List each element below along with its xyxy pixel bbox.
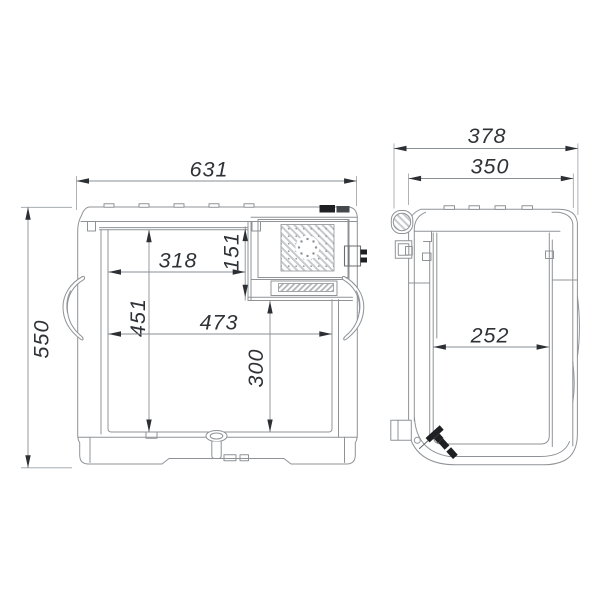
dim-label-451: 451 [126, 298, 150, 337]
dim-label-300: 300 [244, 349, 268, 388]
dim-350-body-depth: 350 [409, 155, 574, 209]
front-hinge-mark-right [337, 206, 350, 213]
dim-631-overall-width: 631 [77, 158, 357, 211]
dim-label-550: 550 [30, 320, 54, 359]
dim-label-473: 473 [200, 311, 239, 335]
dim-label-350: 350 [471, 155, 510, 179]
lid-hinge [391, 211, 413, 234]
drawing-canvas: 631 550 318 151 451 [0, 0, 600, 600]
vent-grille [281, 225, 334, 272]
dim-label-252: 252 [470, 324, 510, 348]
dim-label-318: 318 [159, 249, 198, 273]
dim-label-378: 378 [468, 124, 507, 148]
technical-drawing: 631 550 318 151 451 [0, 0, 600, 600]
condenser-slot [279, 284, 334, 292]
dim-550-overall-height: 550 [21, 207, 72, 468]
hinge-bracket [395, 241, 412, 258]
front-hinge-mark-left [320, 205, 336, 213]
dim-label-631: 631 [190, 158, 229, 182]
dim-label-151: 151 [220, 232, 244, 271]
